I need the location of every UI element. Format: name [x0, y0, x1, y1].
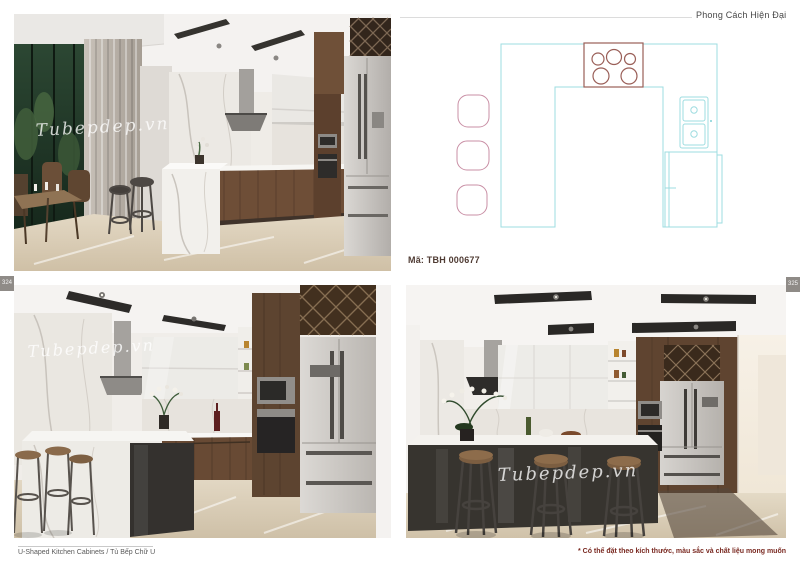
photo1-wine-lattice	[350, 18, 391, 58]
floor-plan-diagram	[400, 20, 800, 255]
floor-plan-scene	[400, 20, 800, 255]
kitchen-render-top: Tubepdep.vn	[14, 14, 391, 271]
page-number-right: 325	[786, 277, 800, 292]
photo2-wine-bottle	[214, 411, 220, 431]
kitchen-render-top-scene: Tubepdep.vn	[14, 14, 391, 271]
cooktop	[584, 43, 643, 87]
refrigerator-plan	[665, 152, 722, 227]
photo2-kitchen-island	[22, 431, 194, 538]
footer-divider-line	[18, 546, 153, 547]
photo1-tall-oven-unit	[314, 32, 344, 219]
kitchen-render-bottom-left-scene: Tubepdep.vn	[14, 285, 391, 538]
double-sink	[680, 97, 712, 148]
bar-chairs	[457, 95, 489, 215]
photo1-curtain	[84, 39, 142, 239]
chair-2	[457, 141, 489, 170]
photo3-bottle	[526, 417, 531, 435]
header-divider-line	[400, 17, 692, 18]
photo2-backsplash	[142, 399, 254, 435]
kitchen-render-bottom-right: Tubepdep.vn	[406, 285, 786, 538]
photo3-upper-cabinets-glossy	[498, 345, 608, 409]
photo2-tall-wood-column	[252, 293, 300, 497]
photo2-fridge	[300, 337, 378, 513]
chair-3	[457, 185, 487, 215]
kitchen-render-bottom-right-scene: Tubepdep.vn	[406, 285, 786, 538]
chair-1	[458, 95, 489, 127]
photo3-right-opening	[738, 335, 786, 520]
sink-tap-dot	[710, 120, 712, 122]
page-number-left: 324	[0, 276, 14, 291]
footer-note: * Có thể đặt theo kích thước, màu sắc và…	[578, 548, 786, 555]
photo3-counter-pot	[539, 429, 553, 437]
kitchen-render-bottom-left: Tubepdep.vn	[14, 285, 391, 538]
photo2-wine-lattice	[300, 285, 376, 335]
product-code: Mã: TBH 000677	[408, 255, 480, 265]
footer-caption: U-Shaped Kitchen Cabinets / Tủ Bếp Chữ U	[18, 549, 155, 556]
photo3-wine-lattice	[664, 345, 720, 381]
photo3-fridge	[660, 381, 724, 485]
style-category-label: Phong Cách Hiện Đại	[696, 10, 786, 20]
photo2-right-wall	[376, 285, 391, 538]
photo1-fridge	[344, 56, 391, 256]
